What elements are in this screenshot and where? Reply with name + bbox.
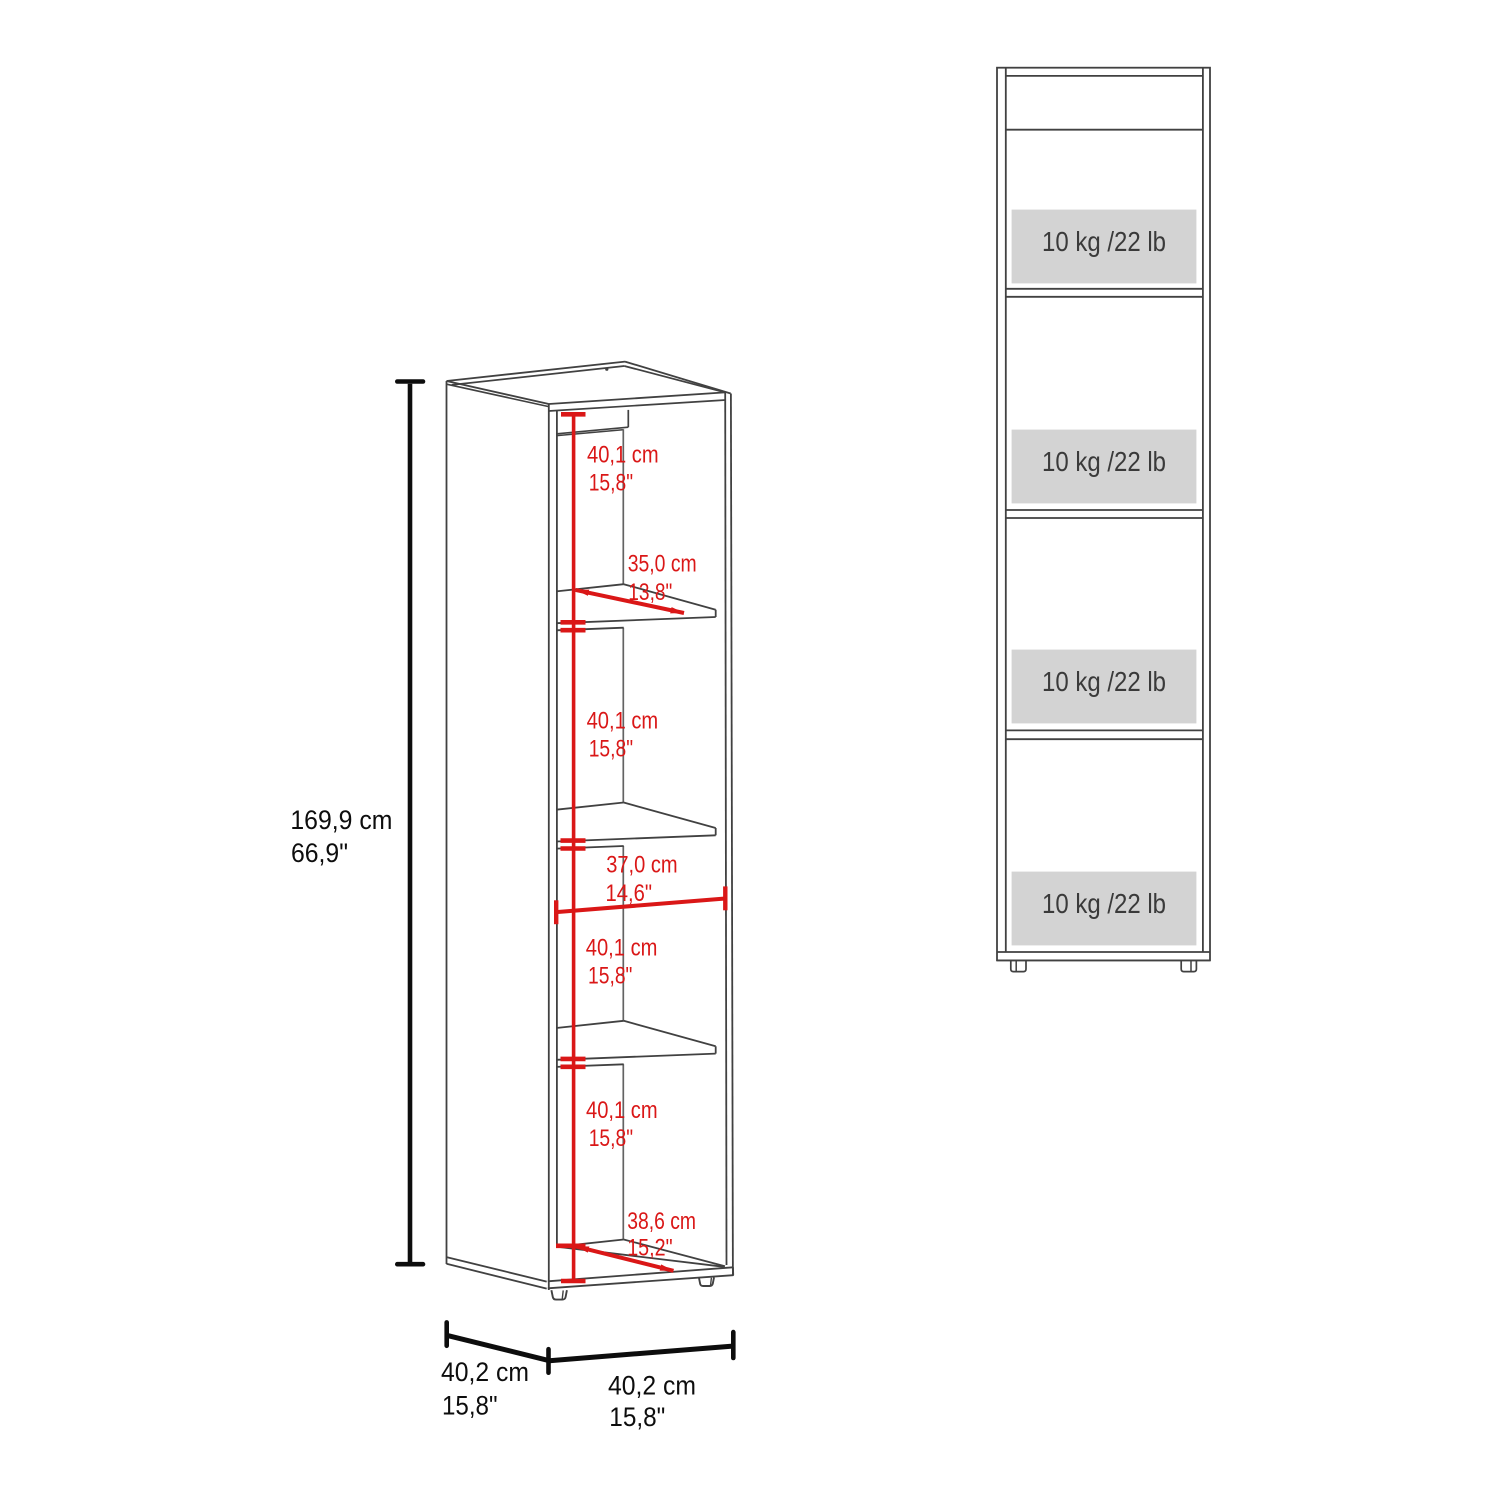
- svg-text:10 kg /22 lb: 10 kg /22 lb: [1042, 446, 1166, 477]
- svg-text:38,6 cm: 38,6 cm: [627, 1208, 696, 1235]
- svg-text:15,8": 15,8": [442, 1391, 498, 1421]
- svg-text:15,2": 15,2": [627, 1235, 672, 1262]
- svg-text:15,8": 15,8": [609, 1402, 665, 1432]
- svg-text:66,9": 66,9": [291, 838, 348, 868]
- svg-text:40,2 cm: 40,2 cm: [608, 1371, 696, 1401]
- svg-text:40,1 cm: 40,1 cm: [587, 442, 659, 469]
- svg-text:15,8": 15,8": [589, 1125, 633, 1152]
- svg-text:40,1 cm: 40,1 cm: [587, 707, 659, 734]
- svg-text:37,0 cm: 37,0 cm: [606, 852, 677, 879]
- svg-text:10 kg /22 lb: 10 kg /22 lb: [1042, 888, 1166, 919]
- svg-text:40,2 cm: 40,2 cm: [441, 1357, 529, 1387]
- svg-text:169,9 cm: 169,9 cm: [290, 805, 392, 835]
- svg-text:13,8": 13,8": [628, 579, 672, 606]
- svg-text:10 kg /22 lb: 10 kg /22 lb: [1042, 666, 1166, 697]
- svg-text:40,1 cm: 40,1 cm: [586, 935, 658, 962]
- svg-text:15,8": 15,8": [589, 735, 633, 762]
- svg-text:15,8": 15,8": [588, 963, 632, 990]
- svg-text:15,8": 15,8": [589, 470, 633, 497]
- svg-text:10 kg /22 lb: 10 kg /22 lb: [1042, 226, 1166, 257]
- svg-text:40,1 cm: 40,1 cm: [586, 1097, 658, 1124]
- svg-text:14,6": 14,6": [606, 880, 653, 907]
- svg-text:35,0 cm: 35,0 cm: [628, 551, 697, 578]
